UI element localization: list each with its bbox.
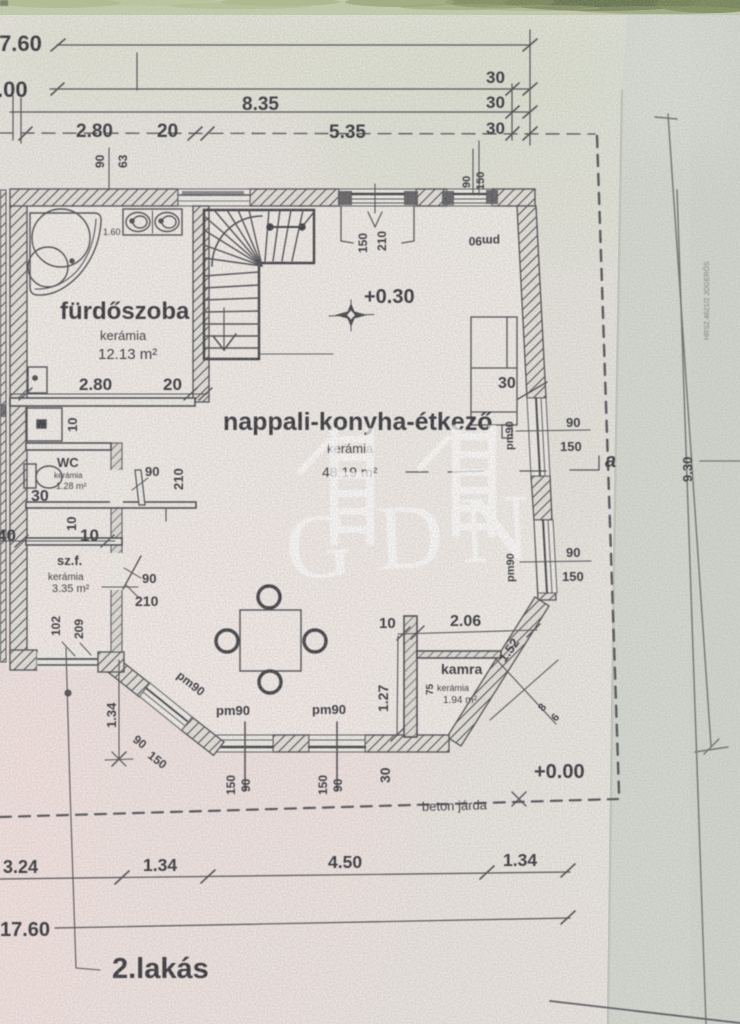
svg-text:90: 90 xyxy=(142,571,156,586)
svg-text:G: G xyxy=(283,493,355,598)
svg-text:30: 30 xyxy=(486,68,505,87)
svg-text:20: 20 xyxy=(163,375,182,394)
svg-text:10: 10 xyxy=(65,418,80,432)
svg-text:150: 150 xyxy=(316,775,330,795)
svg-text:12.13 m²: 12.13 m² xyxy=(98,346,157,363)
svg-text:2.lakás: 2.lakás xyxy=(112,953,209,985)
svg-text:40: 40 xyxy=(0,526,16,545)
svg-text:150: 150 xyxy=(224,775,238,795)
svg-text:1.27: 1.27 xyxy=(375,685,391,712)
svg-text:210: 210 xyxy=(171,468,186,490)
svg-text:+0.30: +0.30 xyxy=(364,286,415,308)
svg-text:3.24: 3.24 xyxy=(3,857,38,877)
svg-text:1.60: 1.60 xyxy=(103,227,121,237)
svg-text:90: 90 xyxy=(93,154,107,168)
svg-text:1.94 m²: 1.94 m² xyxy=(443,695,478,706)
svg-text:90: 90 xyxy=(566,545,580,560)
svg-text:30: 30 xyxy=(377,767,393,783)
svg-text:7.60: 7.60 xyxy=(0,31,42,56)
svg-text:150: 150 xyxy=(356,233,370,253)
svg-text:kerámia: kerámia xyxy=(437,683,469,693)
svg-text:.00: .00 xyxy=(0,77,28,102)
svg-text:fürdőszoba: fürdőszoba xyxy=(60,298,190,325)
svg-text:HRSZ.4621/2 JOGERŐS: HRSZ.4621/2 JOGERŐS xyxy=(702,261,711,340)
svg-text:1.28 m²: 1.28 m² xyxy=(56,481,87,491)
svg-text:kamra: kamra xyxy=(441,661,482,677)
svg-text:D: D xyxy=(374,484,446,589)
svg-text:210: 210 xyxy=(135,593,159,609)
svg-text:63: 63 xyxy=(116,154,130,168)
svg-text:90: 90 xyxy=(461,176,473,188)
svg-text:beton járda: beton járda xyxy=(422,797,488,814)
svg-text:pm90: pm90 xyxy=(216,703,250,718)
svg-text:pm90: pm90 xyxy=(468,234,500,248)
svg-text:102: 102 xyxy=(49,616,63,636)
svg-text:30: 30 xyxy=(31,488,49,505)
svg-text:pm90: pm90 xyxy=(312,702,346,717)
svg-text:kerámia: kerámia xyxy=(100,328,147,343)
svg-text:90: 90 xyxy=(566,415,580,430)
svg-text:210: 210 xyxy=(375,231,389,251)
svg-text:1.34: 1.34 xyxy=(503,850,537,870)
svg-text:30: 30 xyxy=(486,119,505,138)
svg-text:20: 20 xyxy=(157,121,178,142)
svg-text:4.50: 4.50 xyxy=(328,852,362,872)
svg-text:9.30: 9.30 xyxy=(680,457,695,482)
svg-text:3.35 m²: 3.35 m² xyxy=(52,583,90,595)
svg-text:sz.f.: sz.f. xyxy=(57,553,82,568)
svg-text:90: 90 xyxy=(145,464,159,479)
svg-text:30: 30 xyxy=(486,93,505,112)
svg-text:10: 10 xyxy=(64,517,79,531)
svg-text:10: 10 xyxy=(379,615,396,632)
svg-text:1.34: 1.34 xyxy=(143,855,177,875)
svg-text:1.34: 1.34 xyxy=(104,702,119,728)
svg-text:+0.00: +0.00 xyxy=(534,761,585,783)
svg-text:kerámia: kerámia xyxy=(48,572,84,583)
svg-text:WC: WC xyxy=(57,455,79,470)
svg-text:8.35: 8.35 xyxy=(242,94,279,115)
svg-text:90: 90 xyxy=(239,778,253,792)
svg-text:a: a xyxy=(605,450,616,472)
svg-text:30: 30 xyxy=(498,375,516,392)
svg-text:209: 209 xyxy=(72,619,86,639)
svg-text:10: 10 xyxy=(80,526,99,545)
svg-text:90: 90 xyxy=(331,778,345,792)
svg-text:75: 75 xyxy=(425,683,436,695)
svg-text:5.35: 5.35 xyxy=(329,122,366,143)
svg-text:150: 150 xyxy=(475,172,487,190)
svg-text:17.60: 17.60 xyxy=(0,919,50,941)
svg-text:150: 150 xyxy=(560,439,582,454)
svg-text:pm90: pm90 xyxy=(504,421,516,450)
svg-text:150: 150 xyxy=(562,569,584,584)
svg-text:N: N xyxy=(458,473,533,583)
svg-text:2.80: 2.80 xyxy=(76,121,113,142)
svg-text:kerámia: kerámia xyxy=(54,471,83,480)
svg-text:2.06: 2.06 xyxy=(450,613,481,630)
svg-text:2.80: 2.80 xyxy=(79,375,112,394)
